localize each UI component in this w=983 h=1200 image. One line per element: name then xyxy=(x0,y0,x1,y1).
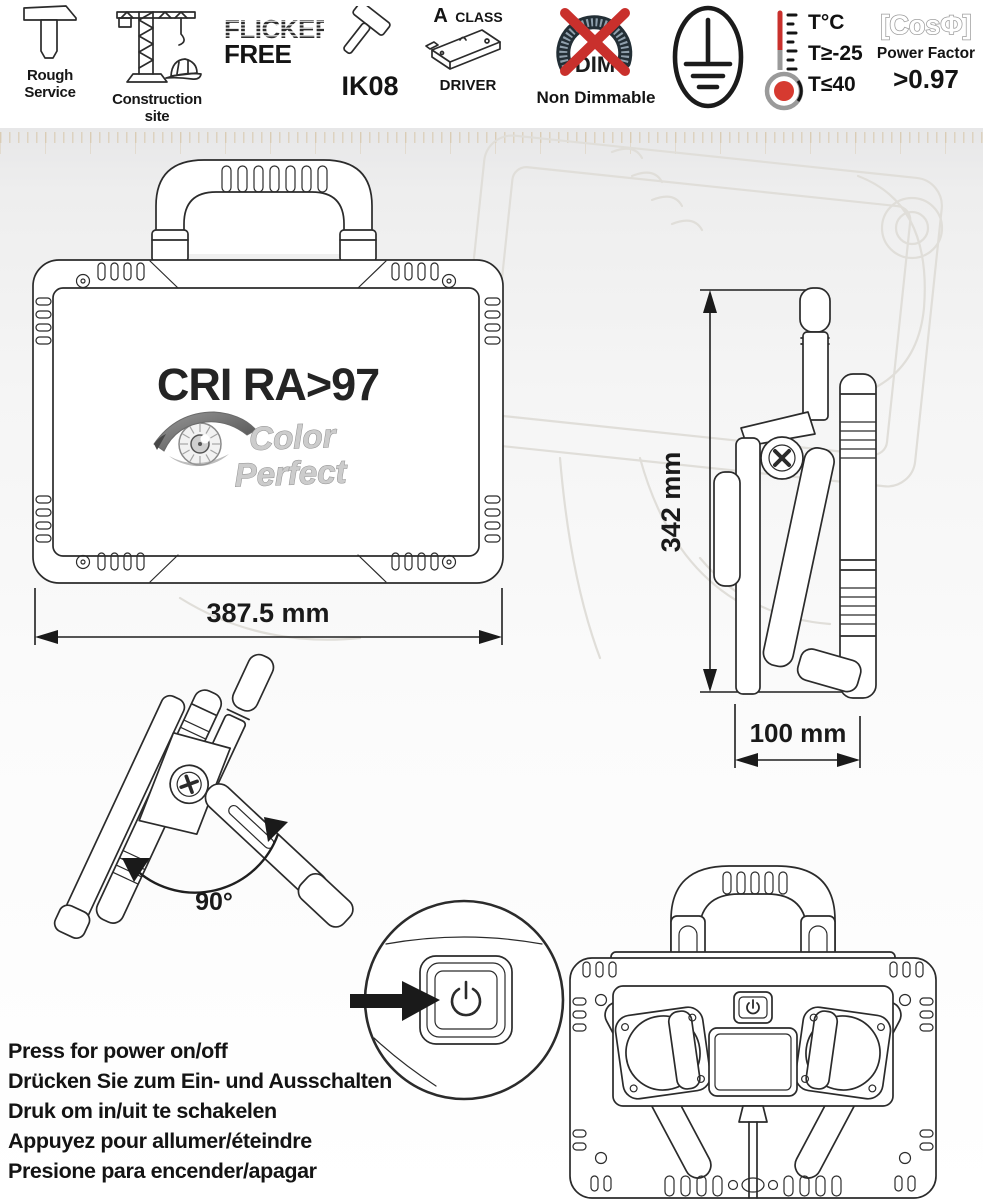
rotation-angle-label: 90° xyxy=(195,888,233,916)
back-view-drawing xyxy=(553,858,953,1200)
badge-power-factor: [CosΦ] Power Factor >0.97 xyxy=(872,6,980,107)
non-dimmable-label: Non Dimmable xyxy=(534,88,658,108)
a-class-word: CLASS xyxy=(455,9,502,25)
carry-handle xyxy=(152,160,376,262)
badge-a-class-driver: A CLASS DRIVER xyxy=(418,4,518,105)
thermometer-icon: T°C T≥-25 T≤40 xyxy=(758,4,874,114)
cri-ra-value: CRI RA>97 xyxy=(157,359,379,410)
depth-dimension: 100 mm xyxy=(735,704,860,768)
ik08-hammer-icon xyxy=(339,6,401,64)
power-factor-label: Power Factor xyxy=(877,45,975,62)
svg-text:A CLASS: A CLASS xyxy=(433,5,502,27)
logo-line2: Perfect xyxy=(234,453,349,494)
width-dimension: 387.5 mm xyxy=(35,588,502,645)
power-instructions: Press for power on/off Drücken Sie zum E… xyxy=(8,1036,438,1186)
tilt-view-drawing: 90° xyxy=(16,642,366,987)
width-dimension-label: 387.5 mm xyxy=(206,598,329,628)
back-power-button xyxy=(734,992,772,1023)
flicker-free-line2: FREE xyxy=(224,42,324,67)
construction-site-label-line2: site xyxy=(96,108,218,125)
badge-construction-site: Construction site xyxy=(96,2,218,125)
technical-drawing-area: CRI RA>97 xyxy=(0,128,983,1200)
certification-badges-row: Rough Service Construction si xyxy=(0,0,983,128)
height-dimension-label: 342 mm xyxy=(656,452,686,553)
badge-non-dimmable: DIM Non Dimmable xyxy=(534,4,658,108)
cos-phi-formula: [CosΦ] xyxy=(880,10,971,40)
rough-service-label-line1: Rough xyxy=(10,67,90,84)
badge-temperature-range: T°C T≥-25 T≤40 xyxy=(758,4,874,119)
center-panel xyxy=(709,1028,797,1096)
power-factor-value: >0.97 xyxy=(893,64,959,94)
badge-protective-earth xyxy=(668,4,748,117)
left-socket xyxy=(614,1005,713,1100)
temp-min-label: T≥-25 xyxy=(808,42,863,65)
badge-ik08: IK08 xyxy=(328,6,412,102)
ik08-label: IK08 xyxy=(328,71,412,102)
rough-service-icon xyxy=(19,4,81,62)
badge-rough-service: Rough Service xyxy=(10,4,90,101)
driver-label: DRIVER xyxy=(440,77,497,94)
instruction-en: Press for power on/off xyxy=(8,1036,438,1066)
front-view-drawing: CRI RA>97 xyxy=(26,148,510,653)
logo-line1: Color xyxy=(249,417,339,457)
side-view-drawing: 342 mm xyxy=(648,276,948,796)
rough-service-label-line2: Service xyxy=(10,84,90,101)
a-class-driver-icon: A CLASS DRIVER xyxy=(420,4,516,100)
temp-max-label: T≤40 xyxy=(808,73,856,96)
handle-post-side xyxy=(800,288,830,420)
a-class-letter: A xyxy=(433,5,447,27)
instruction-es: Presione para encender/apagar xyxy=(8,1156,438,1186)
right-socket xyxy=(794,1005,893,1100)
construction-site-label-line1: Construction xyxy=(96,91,218,108)
instruction-nl: Druk om in/uit te schakelen xyxy=(8,1096,438,1126)
depth-dimension-label: 100 mm xyxy=(750,718,847,748)
badge-flicker-free: FLICKER FREE xyxy=(224,17,324,67)
instruction-fr: Appuyez pour allumer/éteindre xyxy=(8,1126,438,1156)
power-factor-icon: [CosΦ] Power Factor >0.97 xyxy=(872,6,980,102)
construction-site-icon xyxy=(109,2,205,86)
instruction-de: Drücken Sie zum Ein- und Ausschalten xyxy=(8,1066,438,1096)
temp-unit-label: T°C xyxy=(808,11,844,34)
handle-bar-side xyxy=(840,374,876,698)
non-dimmable-icon: DIM xyxy=(548,4,644,82)
product-spec-sheet: Rough Service Construction si xyxy=(0,0,983,1200)
socket-panel xyxy=(613,986,893,1106)
protective-earth-icon xyxy=(669,4,747,112)
